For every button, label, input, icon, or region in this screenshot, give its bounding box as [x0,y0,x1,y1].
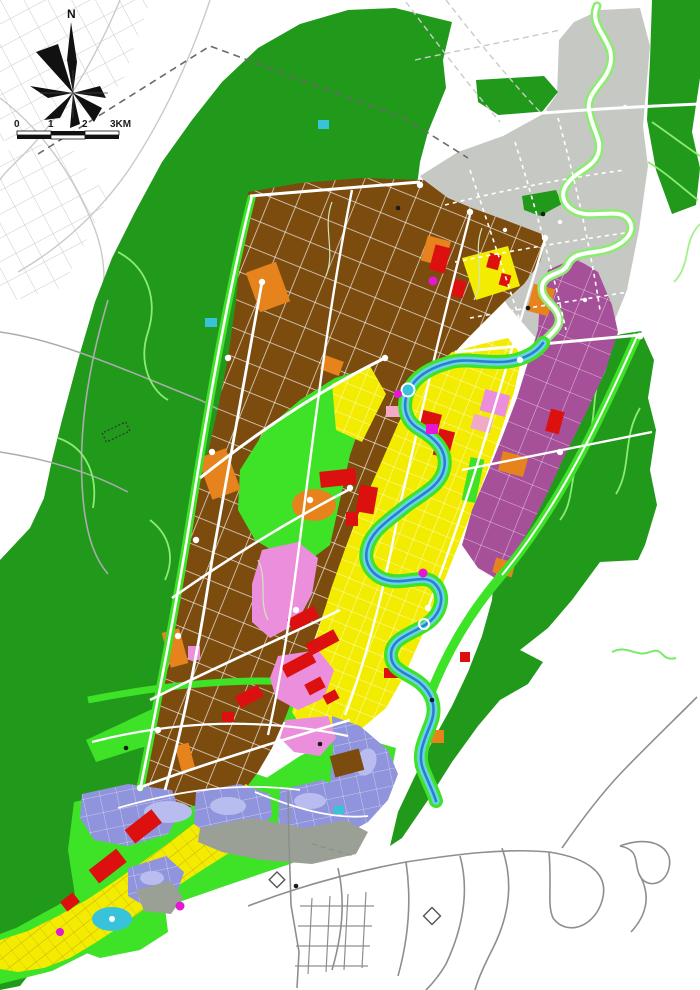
north-label: N [67,7,76,21]
planning-map-page: N 0 1 2 3KM [0,0,700,990]
scale-tick-3: 3KM [110,119,131,130]
interchange-marker [269,872,285,888]
scale-tick-0: 0 [14,119,20,130]
interchange-marker [424,908,441,925]
scale-bar-segments [17,131,119,139]
master-plan-map: N 0 1 2 3KM [0,0,700,990]
scale-tick-1: 1 [48,119,54,130]
river-node-ring [402,384,415,397]
scale-tick-2: 2 [82,119,88,130]
